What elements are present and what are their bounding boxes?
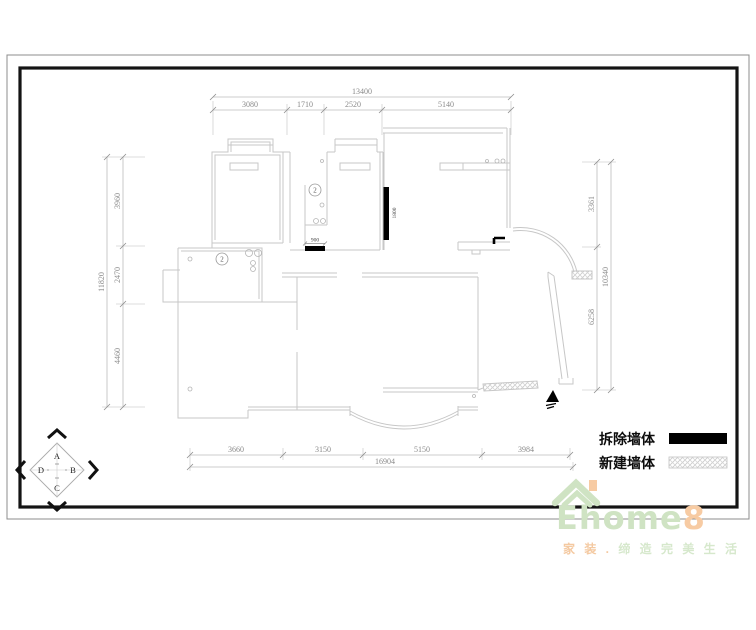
dim-top-overall: 13400 [352, 87, 372, 96]
dim-right-seg: 3361 [587, 196, 596, 212]
compass-letter-d: D [38, 465, 44, 475]
drawing-sheet: Ehome8 家 装 . 缔 造 完 美 生 活 [0, 0, 756, 630]
sheet-frame [7, 55, 749, 519]
legend-new-swatch [669, 457, 727, 468]
legend-demolish-swatch [669, 433, 727, 444]
demolish-corner-mark [494, 238, 505, 244]
dimension-labels: 13400 3080 1710 2520 5140 11820 3960 247… [97, 87, 610, 466]
dim-right-seg: 6258 [587, 309, 596, 325]
dim-left-seg: 3960 [113, 193, 122, 209]
legend-demolish-label: 拆除墙体 [599, 431, 656, 447]
demolish-wall-vertical [384, 187, 390, 240]
dim-top-seg: 2520 [345, 100, 361, 109]
logo-chimney-icon [589, 480, 597, 491]
compass-rose: A B C D [17, 430, 97, 510]
demolish-wall-opening [305, 246, 325, 251]
floor-plan-walls [163, 128, 592, 429]
room-tag: 2 [313, 187, 317, 195]
demolish-walls [305, 187, 559, 409]
dim-bottom-seg: 3150 [315, 445, 331, 454]
dim-opening: 900 [311, 238, 320, 244]
room-tag: 2 [220, 256, 224, 264]
compass-letter-c: C [54, 483, 60, 493]
brand-green-text: Ehome [556, 499, 683, 537]
dim-left-overall: 11820 [97, 272, 106, 292]
brand-wordmark: Ehome8 [556, 499, 706, 537]
watermark-logo: Ehome8 家 装 . 缔 造 完 美 生 活 [555, 480, 740, 556]
dim-left-seg: 2470 [113, 267, 122, 283]
dim-top-seg: 3080 [242, 100, 258, 109]
compass-chevron-north [48, 430, 66, 438]
compass-letter-b: B [70, 465, 76, 475]
legend-new-label: 新建墙体 [599, 455, 656, 471]
dim-demolish-wall: 1800 [392, 207, 398, 218]
dimension-lines [102, 94, 616, 471]
dim-right-overall: 10340 [601, 267, 610, 287]
floor-plan-canvas: Ehome8 家 装 . 缔 造 完 美 生 活 [0, 0, 756, 630]
brand-tagline: 家 装 . 缔 造 完 美 生 活 [563, 541, 740, 556]
entry-arrow-icon [546, 390, 559, 402]
brand-orange-text: 8 [683, 499, 706, 537]
dim-bottom-seg: 5150 [414, 445, 430, 454]
entry-arrow-dashes [546, 404, 556, 409]
dim-bottom-seg: 3984 [518, 445, 534, 454]
dim-bottom-seg: 3660 [228, 445, 244, 454]
wall-legend: 拆除墙体 新建墙体 [599, 431, 727, 471]
plan-symbols [188, 159, 505, 398]
dim-left-seg: 4460 [113, 348, 122, 364]
compass-chevron-east [89, 461, 97, 479]
dim-top-seg: 5140 [438, 100, 454, 109]
compass-letter-a: A [54, 451, 61, 461]
dim-top-seg: 1710 [297, 100, 313, 109]
dim-bottom-overall: 16904 [375, 457, 395, 466]
